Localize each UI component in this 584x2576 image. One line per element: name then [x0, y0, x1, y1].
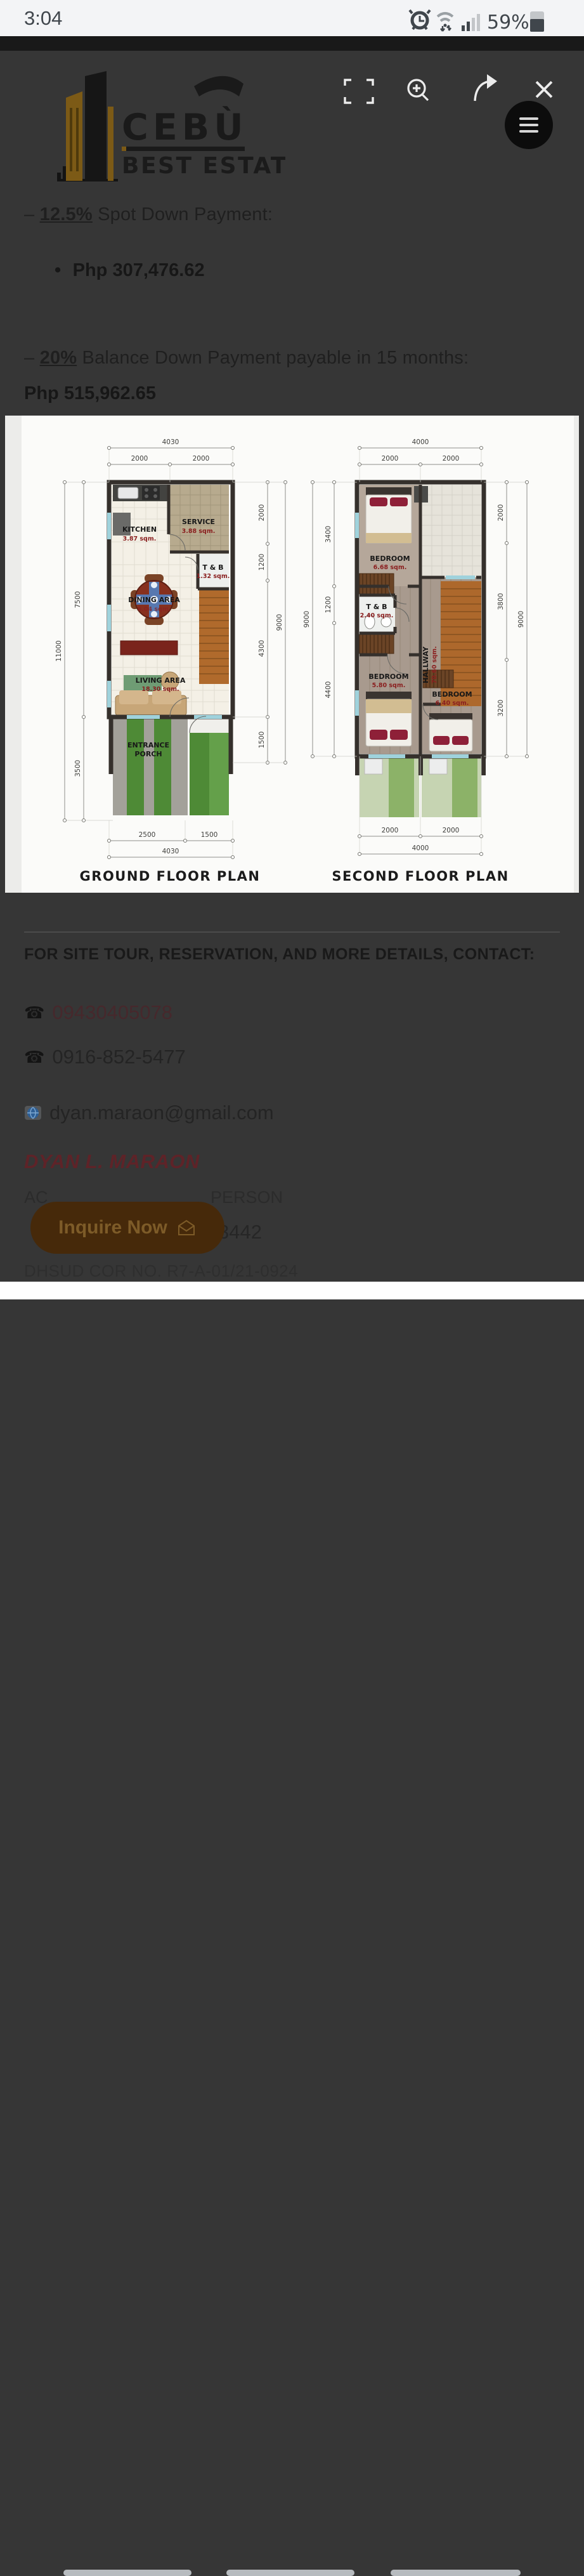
alarm-icon: [410, 10, 430, 29]
sf-dim-top-overall: 4000: [412, 438, 429, 446]
gf-porch-label-2: PORCH: [134, 750, 162, 758]
sf-bed-right: [429, 713, 472, 751]
spot-downpayment-line: – 12.5% Spot Down Payment:: [24, 204, 273, 225]
signal-bars-icon: [462, 14, 480, 31]
gf-service-area: 3.88 sqm.: [182, 528, 216, 535]
logo-divider-accent: [122, 147, 126, 151]
logo-swoosh-icon: [194, 76, 243, 96]
phone-link-2[interactable]: ☎ 0916-852-5477: [24, 1046, 186, 1068]
gf-kitchen-area: 3.87 sqm.: [123, 536, 157, 542]
sf-tb-label: T & B: [366, 603, 387, 611]
logo-subtitle: BEST ESTATE: [122, 153, 285, 179]
sf-dim-bottom-overall: 4000: [412, 844, 429, 852]
accreditation-text-right: PERSON: [211, 1188, 283, 1207]
sf-bedroom1-label: BEDROOM: [370, 555, 410, 563]
share-icon[interactable]: [475, 74, 497, 101]
gf-dining-area: 6.04 sqm.: [138, 606, 171, 613]
gf-dim-left-lower: 3500: [74, 760, 82, 777]
inquire-now-button[interactable]: Inquire Now: [30, 1202, 224, 1254]
sf-dim-right-1: 2000: [497, 504, 505, 522]
ground-floor-plan-title: GROUND FLOOR PLAN: [80, 869, 261, 884]
gf-dim-right-4: 1500: [258, 732, 266, 749]
gf-tb-label: T & B: [202, 563, 223, 572]
gf-dim-bottom-right: 1500: [201, 831, 218, 839]
section-divider: [24, 931, 560, 933]
battery-percent: 59%: [487, 11, 529, 34]
sf-bedroom2-label: BEDROOM: [368, 673, 408, 681]
sf-dim-left-outer: 9000: [303, 611, 311, 628]
gf-dim-right-outer: 9000: [276, 614, 283, 631]
logo-wordmark: CEBÙ: [122, 105, 248, 148]
sf-bedroom3-area: 6.40 sqm.: [436, 700, 469, 707]
menu-fab-button[interactable]: [505, 101, 553, 149]
ground-floor-plan: KITCHEN 3.87 sqm. SERVICE 3.88 sqm. T & …: [6, 417, 292, 890]
gf-dim-right-1: 2000: [258, 504, 266, 522]
gf-dim-top-right: 2000: [193, 455, 210, 463]
wifi-arrows-icon: [438, 13, 453, 31]
sf-bedroom2-area: 5.80 sqm.: [372, 682, 406, 689]
gf-porch-label-1: ENTRANCE: [127, 741, 169, 749]
balance-label: Balance Down Payment payable in 15 month…: [82, 348, 469, 368]
sf-hallway-label: HALLWAY: [422, 646, 430, 683]
cebu-best-estate-logo: CEBÙ BEST ESTATE: [57, 70, 285, 184]
sf-bedroom1-area: 6.68 sqm.: [373, 564, 407, 571]
license-number-fragment: 3442: [218, 1221, 262, 1244]
nav-recent-button[interactable]: [63, 2570, 191, 2576]
sf-tb-area: 2.40 sqm.: [360, 612, 394, 619]
contact-heading: FOR SITE TOUR, RESERVATION, AND MORE DET…: [24, 945, 535, 964]
gf-service-label: SERVICE: [182, 518, 215, 526]
gf-dim-top-left: 2000: [131, 455, 148, 463]
spot-percent: 12.5%: [40, 204, 93, 225]
gf-tb-area: 1.32 sqm.: [197, 573, 230, 580]
gf-dim-left-upper: 7500: [74, 591, 82, 608]
gf-dim-right-3: 4300: [258, 640, 266, 657]
status-bar-clock: 3:04: [24, 7, 62, 30]
open-envelope-icon: [176, 1219, 197, 1237]
balance-percent: 20%: [40, 348, 77, 368]
sf-dim-left-3: 4400: [325, 681, 332, 699]
balance-downpayment-line: – 20% Balance Down Payment payable in 15…: [24, 348, 469, 369]
phone-link-1[interactable]: ☎ 09430405078: [24, 1001, 172, 1024]
gf-dim-top-overall: 4030: [162, 438, 179, 446]
sf-dim-right-3: 3200: [497, 700, 505, 717]
second-floor-plan: BEDROOM 6.68 sqm. T & B 2.40 sqm. HALLWA…: [294, 417, 579, 890]
second-floor-plan-title: SECOND FLOOR PLAN: [332, 869, 509, 884]
email-address[interactable]: dyan.maraon@gmail.com: [49, 1101, 274, 1124]
dhsud-registration: DHSUD COR NO. R7-A-01/21-0924: [24, 1261, 298, 1281]
sf-dim-bottom-left: 2000: [382, 827, 399, 834]
gf-living-label: LIVING AREA: [136, 676, 186, 685]
sf-dim-top-left: 2000: [382, 455, 399, 463]
sf-bedroom3-label: BEDROOM: [432, 690, 472, 699]
sf-bed-left: [366, 692, 412, 746]
status-bar-icons: 59%: [406, 0, 580, 36]
balance-amount: Php 515,962.65: [24, 383, 156, 404]
sf-dim-left-2: 1200: [325, 596, 332, 614]
nav-back-button[interactable]: [391, 2570, 521, 2576]
hamburger-icon: [519, 117, 538, 120]
gf-dim-bottom-left: 2500: [139, 831, 156, 839]
phone-icon: ☎: [24, 1048, 44, 1067]
sf-hallway-area: 70.60 sqm.: [431, 646, 438, 683]
bullet: •: [55, 260, 61, 280]
nav-home-button[interactable]: [226, 2570, 354, 2576]
phone-number-2[interactable]: 0916-852-5477: [52, 1046, 185, 1068]
logo-divider-bar: [122, 147, 245, 151]
email-row[interactable]: dyan.maraon@gmail.com: [24, 1101, 274, 1124]
dash: –: [24, 348, 34, 368]
close-icon[interactable]: [536, 82, 552, 97]
sf-dim-right-2: 3800: [497, 593, 505, 610]
sf-dim-top-right: 2000: [443, 455, 460, 463]
gf-kitchen-label: KITCHEN: [122, 525, 157, 534]
dash: –: [24, 204, 34, 225]
phone-icon: ☎: [24, 1003, 44, 1023]
browser-chrome-strip: [0, 36, 584, 51]
gf-living-area: 18.30 sqm.: [141, 686, 179, 693]
zoom-in-icon[interactable]: [408, 80, 428, 100]
spot-label: Spot Down Payment:: [98, 204, 273, 225]
gf-dim-left-outer: 11000: [55, 640, 63, 661]
agent-name: DYAN L. MARAON: [24, 1150, 200, 1173]
inquire-now-label: Inquire Now: [58, 1217, 167, 1239]
fullscreen-icon[interactable]: [345, 80, 373, 103]
sf-dim-left-1: 3400: [325, 526, 332, 543]
spot-amount: Php 307,476.62: [73, 260, 205, 280]
battery-icon: [530, 11, 544, 32]
phone-number-1[interactable]: 09430405078: [52, 1001, 172, 1024]
status-bar: 3:04 59%: [0, 0, 584, 36]
gf-dim-bottom-overall: 4030: [162, 848, 179, 855]
sf-dim-bottom-right: 2000: [443, 827, 460, 834]
spot-amount-line: • Php 307,476.62: [55, 260, 205, 281]
logo-buildings-icon: [66, 71, 114, 181]
sf-dim-right-outer: 9000: [517, 611, 525, 628]
floor-plan-image[interactable]: KITCHEN 3.87 sqm. SERVICE 3.88 sqm. T & …: [5, 416, 579, 893]
gf-dim-right-2: 1200: [258, 554, 266, 571]
android-nav-bar: [0, 1282, 584, 1299]
email-emoji-icon: [24, 1105, 42, 1121]
gf-dining-label: DINING AREA: [128, 596, 180, 604]
